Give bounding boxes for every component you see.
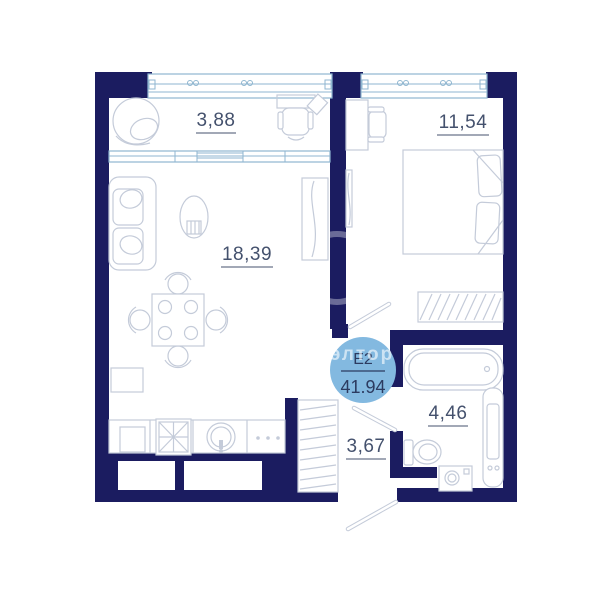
stove-icon (156, 419, 191, 455)
wall-niche-right (184, 461, 262, 490)
tall-cabinet-icon (302, 178, 328, 260)
room-label-living: 18,39 (222, 244, 272, 265)
toilet-icon (404, 440, 441, 465)
sofa-icon (109, 177, 156, 270)
bedroom-desk-icon (346, 100, 368, 150)
wall-bathroom-left-lower (390, 431, 403, 467)
doors (348, 304, 396, 529)
wall-bedroom-bathroom (390, 330, 517, 345)
cabinet-icon (111, 368, 143, 392)
room-label-bathroom: 4,46 (429, 403, 468, 424)
lounge-chair-icon (113, 98, 161, 145)
floorplan-canvas: 3,88 18,39 11,54 4,46 3,67 Е2 41.94 элто… (0, 0, 611, 600)
hall-wardrobe-icon (298, 400, 338, 492)
balcony-glazing-partition (109, 151, 330, 162)
wall-top-left-block (95, 72, 152, 98)
wall-living-bedroom (330, 86, 346, 329)
mirror-shelf-icon (346, 170, 352, 227)
bedroom-door-leaf (350, 304, 389, 327)
wall-left (95, 72, 109, 502)
bathtub-icon (404, 349, 503, 390)
wall-niche-left (118, 461, 175, 490)
wall-right (503, 72, 517, 502)
bedroom-furniture (346, 100, 503, 322)
bedroom-window (361, 74, 487, 98)
radiator-icon (418, 292, 503, 322)
wall-bathroom-inner (390, 467, 437, 478)
wall-top-right-block (486, 72, 517, 98)
room-label-bedroom: 11,54 (439, 112, 488, 133)
double-bed-icon (403, 150, 503, 254)
floorplan-svg: 3,88 18,39 11,54 4,46 3,67 Е2 41.94 элто… (0, 0, 611, 600)
bedroom-chair-icon (368, 107, 386, 142)
kitchen-counter (109, 419, 285, 455)
dining-set-icon (128, 272, 227, 367)
office-chair-icon (278, 108, 313, 140)
room-label-balcony: 3,88 (197, 110, 236, 131)
watermark-text: элтор (330, 344, 394, 365)
unit-area-badge: Е2 41.94 элтор (330, 337, 396, 403)
room-label-hallway: 3,67 (347, 436, 386, 457)
entrance-door-leaf (348, 502, 396, 529)
badge-total-area: 41.94 (340, 377, 385, 397)
wall-living-bedroom-cap (332, 324, 348, 338)
bathroom-door-leaf (354, 408, 395, 430)
washing-machine-icon (439, 466, 472, 491)
shower-cabinet-icon (483, 388, 503, 487)
hallway-furniture (298, 400, 338, 492)
floor-mirror-icon (180, 196, 208, 238)
